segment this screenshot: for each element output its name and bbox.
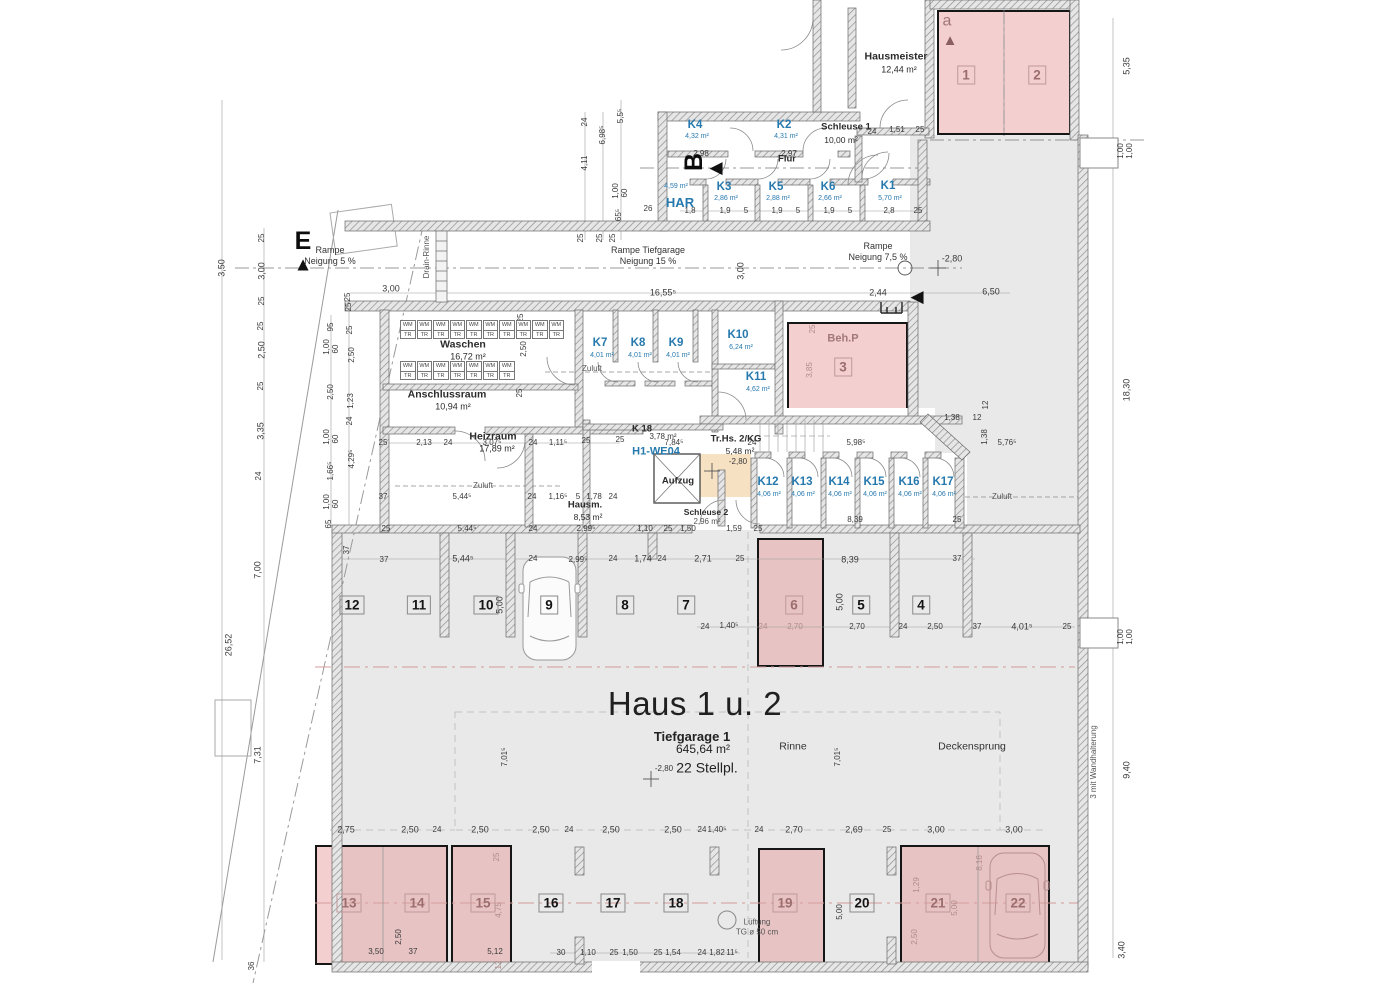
dim-label: 7,00 (253, 561, 264, 579)
washer-dryer-unit: WMTR (466, 361, 482, 380)
dim-label: 2,66 m² (818, 195, 842, 203)
dim-label: 2,86 m² (714, 195, 738, 203)
dim-label: 16,55⁵ (650, 288, 676, 299)
dim-label: 1,00 (322, 339, 332, 355)
dim-label: 3,40 (1117, 941, 1128, 959)
dim-label: 37 (379, 492, 388, 502)
elevator-shaft (654, 454, 700, 503)
unit-label: H1-WE04 (632, 445, 680, 458)
dim-label: 36 (247, 962, 257, 971)
dim-label: 25 (257, 234, 267, 243)
dim-label: 95 (326, 323, 336, 332)
dim-label: 8,53 m² (574, 512, 603, 522)
dim-label: 1,00 (322, 494, 332, 510)
dim-label: 3,78 m² (649, 432, 676, 442)
washer-dryer-unit: WMTR (400, 361, 416, 380)
dim-label: 24 (528, 492, 537, 502)
dim-label: 25 (379, 438, 388, 448)
dim-label: 24 (609, 492, 618, 502)
room-k11: K11 (746, 371, 766, 385)
zone-beh-p (787, 322, 908, 417)
ramp-label-75: Rampe Neigung 7,5 % (848, 241, 907, 263)
dim-label: 4,06 m² (757, 491, 781, 499)
washer-dryer-unit: WMTR (450, 320, 466, 339)
washer-dryer-unit: WMTR (433, 361, 449, 380)
room-k14: K14 (828, 476, 849, 490)
dim-label: 7,31 (253, 746, 264, 764)
stairs (755, 420, 830, 452)
section-marker-b: B (679, 153, 709, 171)
dim-label: 25 (515, 389, 525, 398)
dim-label: 1,00 (611, 183, 621, 199)
dim-label: 24 (580, 118, 590, 127)
dim-label: 25 (256, 322, 266, 331)
room-k18: K 18 (632, 423, 652, 434)
room-anschlussraum: Anschlussraum (408, 389, 487, 402)
dim-label: 25 (256, 382, 266, 391)
dim-label: 1,23 (346, 393, 356, 409)
dim-label: 25 (344, 303, 354, 312)
dim-label: 2,88 m² (766, 195, 790, 203)
dim-label: 4,06 m² (828, 491, 852, 499)
dim-label: 6,98⁵ (598, 126, 608, 145)
dim-label: 5,44⁵ (453, 492, 472, 502)
room-k10: K10 (727, 329, 748, 343)
dim-label: 1,00 (1116, 629, 1126, 645)
dim-label: 1,66⁵ (326, 462, 336, 481)
dim-label: 5 (576, 492, 580, 502)
dim-label: 25 (916, 125, 925, 135)
dim-label: 24 (529, 438, 538, 448)
dim-label: 24 (254, 472, 264, 481)
dim-label: 25 (595, 234, 605, 243)
dim-label: 5 (744, 206, 748, 216)
dim-label: 12,44 m² (881, 65, 917, 76)
dim-label: 24 (444, 438, 453, 448)
washer-dryer-unit: WMTR (532, 320, 548, 339)
dim-label: 2,50 (257, 341, 268, 359)
dim-label: 60 (331, 435, 341, 444)
dim-label: 24 (868, 127, 877, 137)
room-heizraum: Heizraum (469, 431, 516, 444)
dim-label: 2,8 (883, 206, 894, 216)
dim-label: 8,39 (847, 515, 863, 525)
washer-dryer-unit: WMTR (417, 361, 433, 380)
dim-label: 3,00 (736, 262, 747, 280)
dim-label: 1,51 (889, 125, 905, 135)
zone-trhs-landing (700, 419, 757, 497)
zuluft-label-2: Zuluft (473, 481, 493, 491)
dim-label: 3,50 (217, 259, 228, 277)
zone-stall-15 (451, 845, 512, 965)
room-har: HAR (666, 195, 694, 211)
dim-label: 9,40 (1122, 761, 1133, 779)
room-k6: K6 (821, 181, 836, 195)
floor-plan-tiefgarage: Haus 1 u. 2 Tiefgarage 1 645,64 m² 22 St… (0, 0, 1399, 988)
dim-label: 4,59 m² (664, 183, 688, 191)
washer-dryer-unit: WMTR (450, 361, 466, 380)
dim-label: 17,89 m² (479, 444, 515, 455)
dim-label: 18,30 (1122, 379, 1133, 402)
dim-label: 1,00 (322, 429, 332, 445)
dim-label: 1,9 (719, 206, 730, 216)
room-waschen: Waschen (440, 339, 486, 352)
dim-label: 7,84⁵ (665, 438, 684, 448)
ramp-label-15: Rampe Tiefgarage Neigung 15 % (611, 245, 685, 267)
washer-dryer-unit: WMTR (417, 320, 433, 339)
dim-label: 2,97 (781, 149, 797, 159)
room-k15: K15 (863, 476, 884, 490)
dim-label: 1,8 (684, 206, 695, 216)
dim-label: 5 (848, 206, 852, 216)
dim-label: 4,06 m² (863, 491, 887, 499)
zone-stalls-13-14 (315, 845, 448, 965)
zone-stall-19 (758, 848, 825, 968)
dim-label: 65 (324, 520, 334, 529)
dim-label: 2,50 (519, 341, 529, 357)
dim-label: 2,96 m² (693, 517, 720, 527)
dim-label: 4,32 m² (685, 133, 709, 141)
dim-label: 5 (796, 206, 800, 216)
washer-dryer-unit: WMTR (483, 320, 499, 339)
dim-label: 1,00 (1125, 629, 1135, 645)
room-k1: K1 (881, 180, 896, 194)
dim-label: 3,00 (382, 284, 400, 295)
dim-label: 6,24 m² (729, 344, 753, 352)
dim-label: 5,35 (1122, 57, 1133, 75)
dim-label: 3,00 (257, 262, 268, 280)
room-schleuse-2: Schleuse 2 (684, 507, 728, 517)
wandhalterung-label: 3 mit Wandhalterung (1089, 725, 1099, 799)
dim-label: 10,00 m² (824, 135, 858, 145)
dim-label: 1,16⁵ (549, 492, 568, 502)
zone-stall-6 (757, 538, 824, 667)
dim-label: 4,01 m² (666, 352, 690, 360)
section-marker-e: E (295, 226, 312, 256)
dim-label: 60 (331, 500, 341, 509)
dim-label: 25 (257, 297, 267, 306)
room-k7: K7 (593, 337, 608, 351)
drain-rinne-label: Drain-Rinne (422, 236, 432, 279)
washer-dryer-unit: WMTR (433, 320, 449, 339)
dim-label: 60 (620, 189, 630, 198)
dim-label: 26 (644, 204, 653, 214)
room-aufzug: Aufzug (662, 475, 694, 486)
dim-label: 1,78 (586, 492, 602, 502)
dim-label: 3,35 (256, 422, 267, 440)
room-k12: K12 (757, 476, 778, 490)
dim-label: 1,11⁵ (549, 438, 567, 448)
dim-label: 2,98 (693, 149, 709, 159)
washer-dryer-unit: WMTR (466, 320, 482, 339)
dim-label: 4,01 m² (628, 352, 652, 360)
washer-dryer-unit: WMTR (516, 320, 532, 339)
dim-label: 25 (345, 326, 355, 335)
dim-label: 25 (576, 234, 586, 243)
zuluft-label-1: Zuluft (582, 364, 602, 374)
room-k4: K4 (688, 119, 703, 133)
dim-label: 25 (343, 293, 353, 302)
dim-label: 25 (608, 234, 618, 243)
dim-label: 4,62 m² (746, 386, 770, 394)
section-arrow-e-icon: ▲ (294, 255, 313, 278)
dim-label: 2,44 (869, 288, 887, 299)
room-hausmeister: Hausmeister (864, 51, 927, 64)
drain-channel (436, 231, 447, 302)
room-k8: K8 (631, 337, 646, 351)
ramp-label-5: Rampe Neigung 5 % (304, 245, 356, 267)
dim-label: 25 (516, 314, 526, 323)
room-k2: K2 (777, 119, 792, 133)
dim-label: 25 (616, 435, 625, 445)
room-schleuse-1: Schleuse 1 (821, 121, 871, 132)
dim-label: 60 (331, 345, 341, 354)
dim-label: 24 (345, 417, 355, 426)
dim-label: 5,70 m² (878, 195, 902, 203)
dim-label: 4,01 m² (590, 352, 614, 360)
dim-label: 5,98⁵ (847, 438, 866, 448)
room-hausm: Hausm. (568, 499, 602, 510)
dim-label: 1,00 (1116, 143, 1126, 159)
washer-dryer-unit: WMTR (499, 320, 515, 339)
dim-label: 4,31 m² (774, 133, 798, 141)
dim-label: 2,50 (326, 384, 336, 400)
dim-label: 1,9 (771, 206, 782, 216)
dim-label: 1,9 (823, 206, 834, 216)
dim-label: 4,29⁵ (347, 450, 357, 469)
zone-stalls-21-22 (900, 845, 1050, 965)
room-flur: Flur (778, 153, 796, 164)
room-k9: K9 (669, 337, 684, 351)
dim-label: 4,06 m² (791, 491, 815, 499)
dim-label: 2,13 (416, 438, 432, 448)
dim-label: 16,72 m² (450, 352, 486, 363)
room-k13: K13 (791, 476, 812, 490)
zone-stalls-1-2 (937, 10, 1071, 135)
dim-label: 25 (582, 436, 591, 446)
washer-dryer-unit: WMTR (549, 320, 565, 339)
washer-dryer-unit: WMTR (400, 320, 416, 339)
dim-label: 10,94 m² (435, 402, 471, 413)
room-k5: K5 (769, 181, 784, 195)
dim-label: 65⁵ (614, 209, 624, 221)
dim-label: 26,52 (224, 634, 235, 657)
dim-label: 1,00 (1125, 143, 1135, 159)
dim-label: 3,07⁵ (483, 438, 502, 448)
dim-label: 5,5⁵ (616, 109, 626, 123)
room-k3: K3 (717, 181, 732, 195)
washer-dryer-unit: WMTR (499, 361, 515, 380)
dim-label: 2,50 (347, 347, 357, 363)
wall-stubs (1080, 138, 1118, 648)
dim-label: 4,11 (580, 156, 590, 171)
section-arrow-b-icon: ◀ (709, 158, 722, 178)
washer-dryer-unit: WMTR (483, 361, 499, 380)
